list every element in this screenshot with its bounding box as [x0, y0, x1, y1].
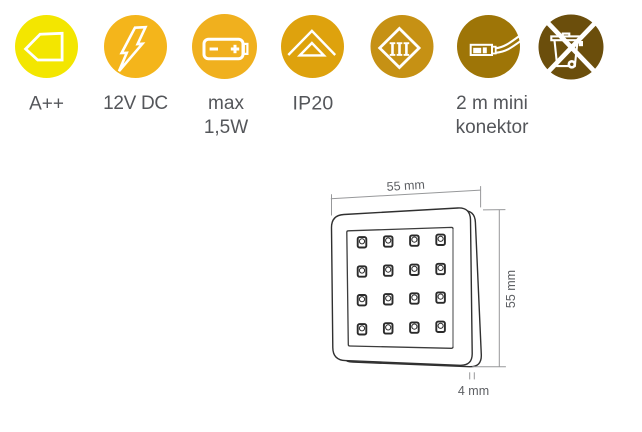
svg-text:2 m mini: 2 m mini	[456, 93, 528, 114]
svg-text:IP20: IP20	[293, 93, 334, 115]
svg-text:1,5W: 1,5W	[204, 117, 248, 138]
svg-text:55 mm: 55 mm	[504, 270, 518, 308]
svg-text:4 mm: 4 mm	[458, 384, 489, 398]
svg-text:55 mm: 55 mm	[386, 178, 425, 194]
svg-text:konektor: konektor	[456, 117, 530, 138]
svg-text:12V DC: 12V DC	[103, 93, 168, 114]
svg-text:A++: A++	[29, 94, 64, 115]
svg-text:max: max	[208, 93, 244, 114]
